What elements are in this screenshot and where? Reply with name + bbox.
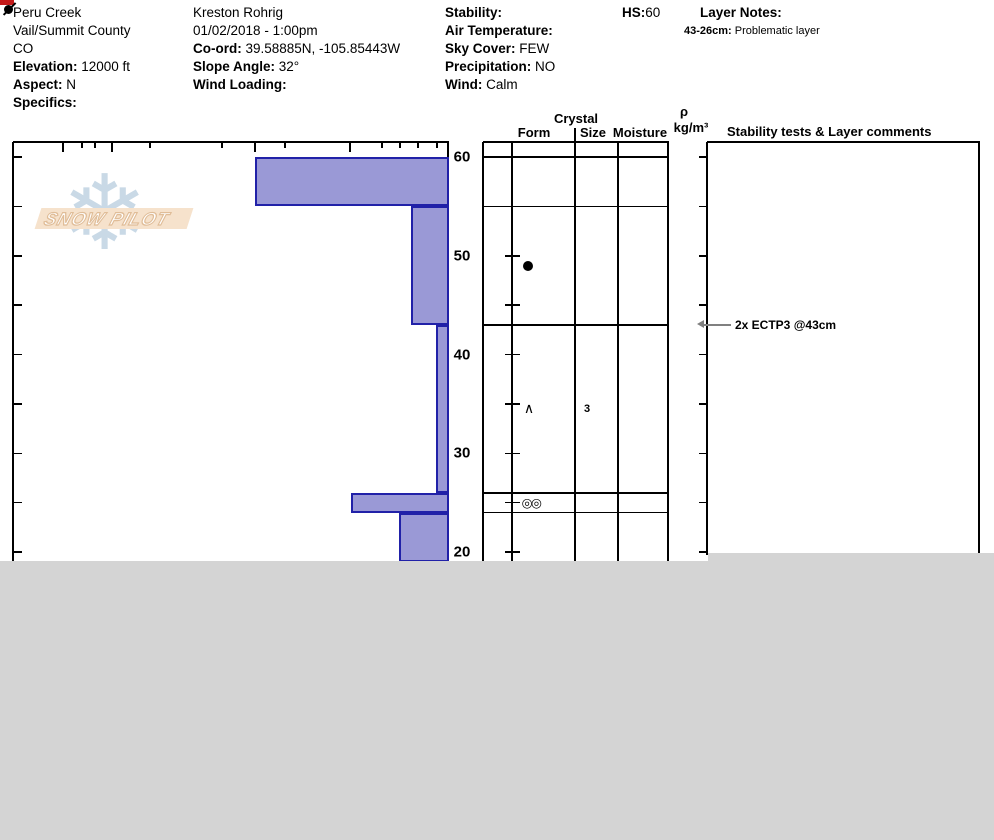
- hardness-axis-tick-major: [254, 142, 256, 152]
- info-value: 60: [645, 5, 660, 20]
- info-line: CO: [13, 40, 131, 58]
- info-value: 39.58885N, -105.85443W: [242, 41, 400, 56]
- depth-axis-label: 50: [454, 247, 471, 264]
- info-label: Layer Notes:: [700, 5, 782, 20]
- info-label: Wind Loading:: [193, 77, 287, 92]
- info-line: Sky Cover: FEW: [445, 40, 555, 58]
- stability-test-label: 2x ECTP3 @43cm: [735, 318, 836, 332]
- info-line: HS:60: [622, 4, 660, 22]
- hardness-bar: [411, 206, 449, 325]
- hardness-bar: [399, 513, 449, 562]
- info-line: Elevation: 12000 ft: [13, 58, 131, 76]
- layer-boundary-line: [483, 156, 669, 158]
- hardness-axis-tick-minor: [417, 142, 419, 148]
- info-line: Precipitation: NO: [445, 58, 555, 76]
- table-top-border: [483, 141, 669, 143]
- info-value: Problematic layer: [732, 25, 820, 37]
- info-column: Layer Notes:43-26cm: Problematic layer: [700, 4, 820, 38]
- depth-tick-left-axis: [14, 502, 22, 504]
- info-value: NO: [531, 59, 555, 74]
- info-value: 01/02/2018 - 1:00pm: [193, 23, 318, 38]
- info-line: 43-26cm: Problematic layer: [684, 24, 820, 38]
- info-value: 12000 ft: [78, 59, 131, 74]
- hardness-axis-tick-minor: [149, 142, 151, 148]
- comments-box-left-border: [706, 142, 708, 555]
- cropped-gray-area: [0, 561, 994, 840]
- stability-column-header: Stability tests & Layer comments: [727, 124, 931, 139]
- info-label: HS:: [622, 5, 645, 20]
- info-line: Vail/Summit County: [13, 22, 131, 40]
- info-column: Kreston Rohrig01/02/2018 - 1:00pmCo-ord:…: [193, 4, 400, 94]
- info-value: Vail/Summit County: [13, 23, 131, 38]
- depth-tick-left-axis: [14, 354, 22, 356]
- hardness-axis-tick-major: [111, 142, 113, 152]
- layer-boundary-line: [483, 492, 669, 494]
- test-arrow-head-icon: [697, 320, 704, 328]
- hardness-axis-tick-minor: [221, 142, 223, 148]
- info-line: Layer Notes:: [700, 4, 820, 22]
- layer-boundary-line: [483, 324, 669, 326]
- hardness-axis-tick-minor: [399, 142, 401, 148]
- table-column-border: [574, 128, 576, 562]
- depth-tick-left-axis: [14, 206, 22, 208]
- density-column-header: ρ: [680, 104, 688, 119]
- hardness-axis-tick-minor: [436, 142, 438, 148]
- info-column: Peru CreekVail/Summit CountyCOElevation:…: [13, 4, 131, 112]
- crystal-column-header: Crystal: [554, 111, 598, 126]
- logo-text: SNOW PILOT: [41, 209, 172, 230]
- info-line: Air Temperature:: [445, 22, 555, 40]
- info-line: Specifics:: [13, 94, 131, 112]
- depth-tick-left-axis: [14, 156, 22, 158]
- info-line: Aspect: N: [13, 76, 131, 94]
- hardness-bar: [351, 493, 449, 513]
- depth-tick-left-axis: [14, 304, 22, 306]
- comments-box-top-border: [707, 141, 980, 143]
- density-units-label: kg/m³: [674, 120, 709, 135]
- hardness-axis-tick-minor: [284, 142, 286, 148]
- snowpilot-logo: ❄ SNOW PILOT: [35, 163, 205, 273]
- logo-band: SNOW PILOT: [35, 208, 194, 229]
- info-value: N: [63, 77, 77, 92]
- depth-axis-label: 20: [454, 544, 471, 561]
- snowpilot-profile-page: Peru CreekVail/Summit CountyCOElevation:…: [0, 0, 994, 840]
- test-arrow-line: [703, 324, 731, 326]
- info-line: 01/02/2018 - 1:00pm: [193, 22, 400, 40]
- info-label: 43-26cm:: [684, 25, 732, 37]
- grain-form-symbol-melt-crust-icon: ◎◎: [522, 496, 541, 510]
- hardness-chart-top-axis: [13, 141, 449, 143]
- depth-axis-label: 30: [454, 445, 471, 462]
- size-column-header: Size: [580, 125, 606, 140]
- info-label: Elevation:: [13, 59, 78, 74]
- info-label: Precipitation:: [445, 59, 531, 74]
- info-label: Slope Angle:: [193, 59, 275, 74]
- info-line: Wind: Calm: [445, 76, 555, 94]
- hardness-axis-tick-minor: [81, 142, 83, 148]
- hardness-axis-tick-major: [349, 142, 351, 152]
- info-label: Aspect:: [13, 77, 63, 92]
- depth-tick-left-axis: [14, 453, 22, 455]
- info-value: FEW: [516, 41, 550, 56]
- grain-form-symbol-rounded-grains-icon: [523, 261, 533, 271]
- depth-axis-label: 60: [454, 149, 471, 166]
- grain-form-symbol-depth-hoar-icon: ∧: [524, 402, 534, 416]
- hardness-bar: [255, 157, 449, 206]
- layer-boundary-line: [483, 206, 669, 208]
- info-line: Slope Angle: 32°: [193, 58, 400, 76]
- hardness-bar: [436, 325, 449, 493]
- info-column: Stability:Air Temperature:Sky Cover: FEW…: [445, 4, 555, 94]
- info-label: Co-ord:: [193, 41, 242, 56]
- grain-size-value: 3: [584, 403, 590, 415]
- info-line: Co-ord: 39.58885N, -105.85443W: [193, 40, 400, 58]
- form-column-header: Form: [518, 125, 551, 140]
- depth-tick-left-axis: [14, 551, 22, 553]
- info-line: Wind Loading:: [193, 76, 400, 94]
- info-label: Specifics:: [13, 95, 77, 110]
- info-value: 32°: [275, 59, 299, 74]
- info-value: Calm: [482, 77, 517, 92]
- info-line: Kreston Rohrig: [193, 4, 400, 22]
- layer-boundary-line: [483, 512, 669, 514]
- info-label: Wind:: [445, 77, 482, 92]
- info-column: HS:60: [622, 4, 660, 22]
- depth-tick-left-axis: [14, 403, 22, 405]
- info-value: Peru Creek: [13, 5, 81, 20]
- info-value: Kreston Rohrig: [193, 5, 283, 20]
- info-label: Stability:: [445, 5, 502, 20]
- info-line: Stability:: [445, 4, 555, 22]
- info-label: Sky Cover:: [445, 41, 516, 56]
- moisture-column-header: Moisture: [613, 125, 667, 140]
- depth-axis-label: 40: [454, 346, 471, 363]
- hardness-axis-tick-major: [62, 142, 64, 152]
- info-label: Air Temperature:: [445, 23, 553, 38]
- hardness-axis-tick-minor: [381, 142, 383, 148]
- depth-tick-left-axis: [14, 255, 22, 257]
- comments-box-right-border: [978, 142, 980, 555]
- info-line: Peru Creek: [13, 4, 131, 22]
- hardness-axis-tick-minor: [94, 142, 96, 148]
- info-value: CO: [13, 41, 33, 56]
